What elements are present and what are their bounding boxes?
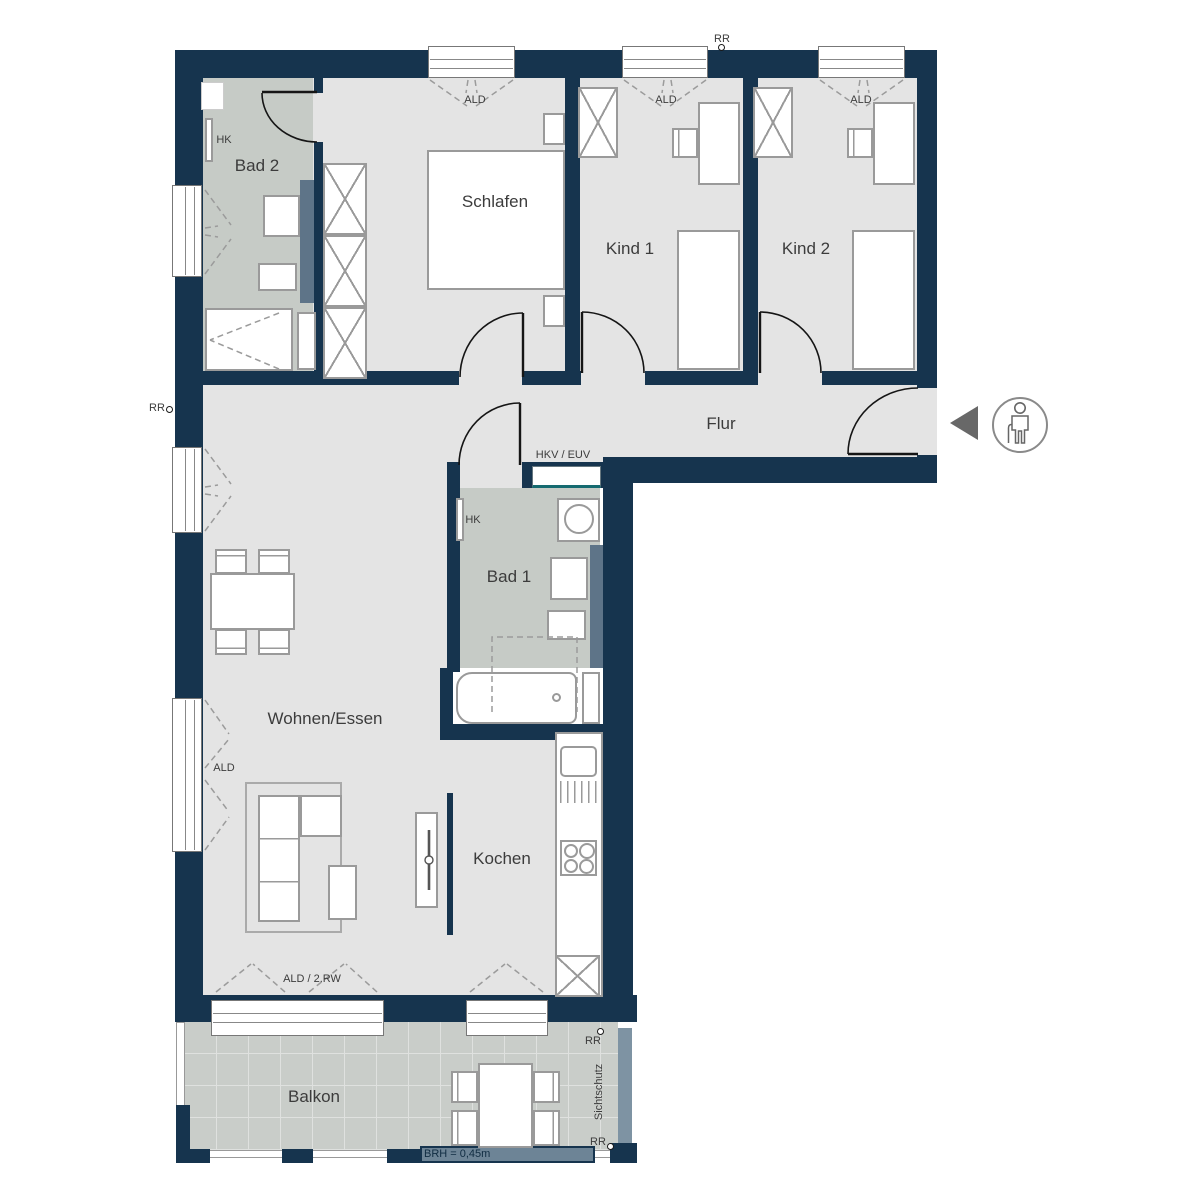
- balcony-chair-4: [533, 1110, 560, 1146]
- chair-kind2: [847, 128, 873, 158]
- room-label-kind1: Kind 1: [606, 239, 654, 259]
- hk-label-bad1: HK: [465, 514, 480, 526]
- wall-bad1-left-lower: [440, 668, 453, 728]
- window-schlafen: [428, 46, 515, 78]
- balcony-chair-1: [451, 1071, 478, 1103]
- dining-chair-3: [215, 629, 247, 655]
- radiator-bad2: [205, 118, 213, 162]
- hkv-euv-label: HKV / EUV: [536, 449, 590, 461]
- room-label-bad1: Bad 1: [487, 567, 531, 587]
- desk-kind1: [698, 102, 740, 185]
- tv-partition-wall: [447, 793, 453, 935]
- stove-burner-2: [579, 843, 595, 859]
- chair-kind1: [672, 128, 698, 158]
- person-with-cane-icon: [993, 398, 1047, 452]
- hkv-euv-niche: [532, 466, 601, 488]
- installation-wall-bad2: [300, 180, 314, 303]
- balcony-pier-mid1: [282, 1149, 313, 1163]
- balcony-pier-left-foot: [176, 1149, 210, 1163]
- sink-bad1: [550, 557, 588, 600]
- ald-label-schlafen: ALD: [464, 94, 485, 106]
- washing-machine: [557, 498, 600, 542]
- wall-right-upper: [917, 50, 937, 388]
- dining-chair-2: [258, 549, 290, 574]
- wall-flur-bottom: [603, 457, 937, 483]
- toilet-bad1: [547, 610, 586, 640]
- window-wohnen-left1: [172, 447, 202, 533]
- wardrobe-kind1: [578, 87, 618, 158]
- ald-2rw-label: ALD / 2.RW: [283, 973, 341, 985]
- ald-label-wohnen: ALD: [213, 762, 234, 774]
- stove-burner-1: [564, 844, 578, 858]
- wardrobe-schlafen-3: [323, 307, 367, 379]
- rr-marker-balcony-bottom: [607, 1143, 614, 1150]
- kitchen-sink: [560, 746, 597, 777]
- window-balcony-door2: [466, 1000, 548, 1036]
- nightstand-2: [543, 295, 565, 327]
- radiator-bad1: [456, 498, 464, 541]
- rr-marker-left: [166, 406, 173, 413]
- room-label-flur: Flur: [706, 414, 735, 434]
- shower-bad2: [205, 308, 293, 371]
- bed-schlafen: [427, 150, 565, 290]
- balcony-pier-right: [610, 1143, 637, 1163]
- toilet-bad2: [258, 263, 297, 291]
- floor-entry-gap: [917, 388, 937, 455]
- room-label-kochen: Kochen: [473, 849, 531, 869]
- rr-label-balcony-bottom: RR: [590, 1136, 606, 1148]
- wardrobe-schlafen-1: [323, 163, 367, 235]
- tv-board: [415, 812, 438, 908]
- shower-partition: [297, 312, 316, 370]
- window-wohnen-left2: [172, 698, 202, 852]
- balcony-table: [478, 1063, 533, 1148]
- rr-marker-balcony-top: [597, 1028, 604, 1035]
- wall-corridor-4: [822, 371, 917, 385]
- dining-chair-1: [215, 549, 247, 574]
- washing-machine-drum: [564, 504, 594, 534]
- room-label-schlafen: Schlafen: [462, 192, 528, 212]
- wall-bad2-stub: [314, 78, 323, 93]
- hk-label-bad2: HK: [216, 134, 231, 146]
- stove-burner-3: [564, 859, 578, 873]
- bathtub-shelf: [582, 672, 600, 724]
- kitchen-fridge: [555, 955, 600, 997]
- ald-label-kind1: ALD: [655, 94, 676, 106]
- wardrobe-kind2: [753, 87, 793, 158]
- room-label-balkon: Balkon: [288, 1087, 340, 1107]
- sink-bad2: [263, 195, 300, 237]
- bed-kind1: [677, 230, 740, 370]
- room-label-wohnen: Wohnen/Essen: [268, 709, 383, 729]
- wall-kitchen-right: [603, 483, 633, 1022]
- rr-label-left: RR: [149, 402, 165, 414]
- window-balcony-door1: [211, 1000, 384, 1036]
- bathtub-drain: [552, 693, 561, 702]
- wall-bad1-left: [447, 462, 460, 672]
- sofa-seats-vertical: [258, 795, 300, 922]
- sichtschutz-label: Sichtschutz: [593, 1064, 605, 1120]
- sofa-seat-corner: [300, 795, 342, 837]
- room-label-kind2: Kind 2: [782, 239, 830, 259]
- dining-chair-4: [258, 629, 290, 655]
- side-table: [328, 865, 357, 920]
- wardrobe-schlafen-2: [323, 235, 367, 307]
- window-kind1: [622, 46, 708, 78]
- balcony-chair-3: [533, 1071, 560, 1103]
- floor-plan: Bad 2 Schlafen Kind 1 Kind 2 Flur Bad 1 …: [0, 0, 1200, 1200]
- balcony-pier-mid2: [387, 1149, 420, 1163]
- stove-burner-4: [579, 859, 594, 874]
- window-bad2: [172, 185, 202, 277]
- window-kind2: [818, 46, 905, 78]
- door-gap-bad1: [460, 462, 522, 488]
- brh-label: BRH = 0,45m: [424, 1148, 490, 1160]
- desk-kind2: [873, 102, 915, 185]
- ald-label-kind2: ALD: [850, 94, 871, 106]
- bed-kind2: [852, 230, 915, 370]
- entrance-arrow-icon: [950, 406, 978, 440]
- wall-corridor-3: [645, 371, 757, 385]
- room-label-bad2: Bad 2: [235, 156, 279, 176]
- rr-label-balcony-top: RR: [585, 1035, 601, 1047]
- dining-table: [210, 573, 295, 630]
- kitchen-drainer: [560, 781, 597, 803]
- kitchen-stove: [560, 840, 597, 876]
- installation-wall-bad1: [590, 545, 603, 668]
- rr-marker-top: [718, 44, 725, 51]
- wall-niche-topleft: [201, 82, 224, 110]
- balcony-chair-2: [451, 1110, 478, 1146]
- nightstand-1: [543, 113, 565, 145]
- privacy-screen-strip: [618, 1028, 632, 1150]
